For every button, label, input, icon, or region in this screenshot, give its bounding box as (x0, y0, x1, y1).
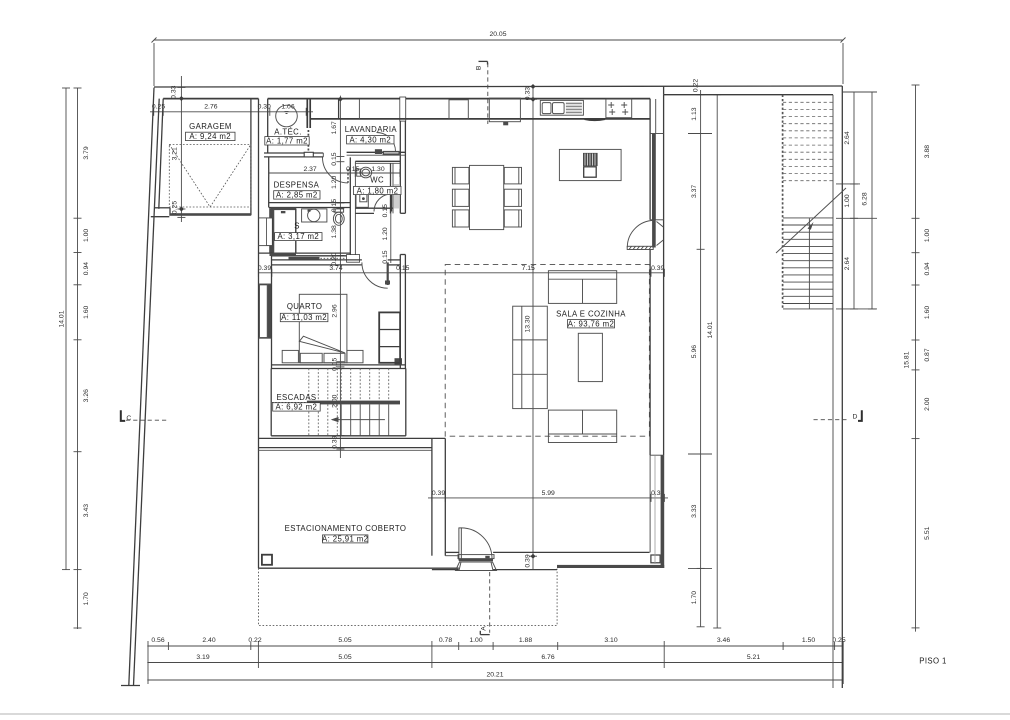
svg-text:0.39: 0.39 (432, 490, 445, 497)
svg-text:SALA E COZINHA: SALA E COZINHA (556, 310, 626, 319)
svg-text:DESPENSA: DESPENSA (274, 181, 320, 190)
svg-text:A: 6,92 m2: A: 6,92 m2 (276, 403, 318, 412)
svg-text:ESCADAS: ESCADAS (276, 393, 316, 402)
svg-text:1.38: 1.38 (331, 225, 338, 238)
svg-text:1.60: 1.60 (924, 306, 931, 319)
svg-text:1.00: 1.00 (924, 229, 931, 242)
svg-text:0.30: 0.30 (258, 104, 271, 111)
svg-text:QUARTO: QUARTO (287, 302, 322, 311)
svg-text:5.05: 5.05 (338, 654, 351, 661)
svg-text:0.39: 0.39 (651, 265, 664, 272)
svg-text:1.70: 1.70 (83, 592, 90, 605)
svg-text:14.01: 14.01 (59, 310, 66, 327)
svg-text:B: B (476, 65, 483, 70)
svg-text:2.96: 2.96 (332, 304, 339, 317)
svg-text:0.15: 0.15 (382, 250, 389, 263)
svg-text:A: 1,80 m2: A: 1,80 m2 (357, 187, 399, 196)
svg-text:WC: WC (370, 176, 384, 185)
svg-text:GARAGEM: GARAGEM (189, 122, 232, 131)
svg-text:0.22: 0.22 (693, 79, 700, 92)
svg-text:S: S (294, 222, 300, 231)
svg-text:0.94: 0.94 (924, 262, 931, 275)
svg-text:0.56: 0.56 (151, 637, 164, 644)
svg-text:15.81: 15.81 (904, 351, 911, 368)
svg-text:0.39: 0.39 (258, 265, 271, 272)
svg-text:20.05: 20.05 (489, 31, 506, 38)
svg-text:A: 9,24 m2: A: 9,24 m2 (189, 132, 231, 141)
svg-text:3.37: 3.37 (691, 185, 698, 198)
svg-text:0.15: 0.15 (396, 265, 409, 272)
svg-text:LAVANDARIA: LAVANDARIA (345, 125, 398, 134)
svg-text:5.51: 5.51 (924, 526, 931, 539)
svg-text:1.67: 1.67 (331, 121, 338, 134)
svg-text:3.79: 3.79 (83, 146, 90, 159)
svg-text:A: 4,30 m2: A: 4,30 m2 (349, 135, 391, 144)
svg-text:20.21: 20.21 (486, 672, 503, 679)
svg-text:1.13: 1.13 (691, 107, 698, 120)
svg-text:A: 3,17 m2: A: 3,17 m2 (277, 232, 319, 241)
svg-text:3.26: 3.26 (83, 389, 90, 402)
svg-text:1.00: 1.00 (83, 229, 90, 242)
svg-text:3.74: 3.74 (329, 265, 342, 272)
svg-text:1.88: 1.88 (519, 637, 532, 644)
svg-text:3.43: 3.43 (83, 504, 90, 517)
svg-text:1.70: 1.70 (691, 591, 698, 604)
svg-text:A: 1,77 m2: A: 1,77 m2 (266, 136, 308, 145)
svg-text:A: 93,76 m2: A: 93,76 m2 (568, 319, 614, 328)
svg-text:A: A (480, 626, 487, 631)
svg-text:A: 11,03 m2: A: 11,03 m2 (281, 313, 327, 322)
svg-text:2.64: 2.64 (844, 131, 851, 144)
svg-text:2.00: 2.00 (924, 397, 931, 410)
svg-text:0.15: 0.15 (331, 199, 338, 212)
svg-text:0.25: 0.25 (832, 637, 845, 644)
svg-text:3.19: 3.19 (196, 654, 209, 661)
svg-text:0.39: 0.39 (332, 435, 339, 448)
svg-text:1.60: 1.60 (83, 305, 90, 318)
svg-text:0.20: 0.20 (331, 252, 338, 265)
svg-text:ESTACIONAMENTO COBERTO: ESTACIONAMENTO COBERTO (285, 524, 407, 533)
svg-text:2.64: 2.64 (844, 257, 851, 270)
svg-text:1.00: 1.00 (844, 194, 851, 207)
svg-text:PISO 1: PISO 1 (919, 657, 947, 666)
svg-text:5.21: 5.21 (747, 654, 760, 661)
svg-text:D: D (853, 414, 858, 421)
svg-text:A: 2,85 m2: A: 2,85 m2 (276, 191, 318, 200)
svg-text:0.22: 0.22 (248, 637, 261, 644)
svg-text:1.50: 1.50 (802, 637, 815, 644)
svg-text:1.20: 1.20 (382, 227, 389, 240)
svg-text:1.30: 1.30 (371, 166, 384, 173)
svg-text:A.TÉC.: A.TÉC. (274, 128, 302, 137)
svg-text:14.01: 14.01 (707, 321, 714, 338)
svg-text:C: C (126, 415, 131, 422)
svg-text:0.15: 0.15 (382, 204, 389, 217)
svg-text:7.15: 7.15 (522, 265, 535, 272)
svg-text:2.37: 2.37 (303, 166, 316, 173)
svg-text:6.76: 6.76 (541, 654, 554, 661)
svg-text:1.00: 1.00 (469, 637, 482, 644)
svg-text:0.94: 0.94 (83, 262, 90, 275)
svg-text:0.15: 0.15 (346, 166, 359, 173)
svg-text:5.99: 5.99 (542, 490, 555, 497)
svg-text:2.76: 2.76 (204, 104, 217, 111)
svg-text:3.88: 3.88 (924, 145, 931, 158)
svg-text:5.05: 5.05 (338, 637, 351, 644)
svg-text:3.10: 3.10 (604, 637, 617, 644)
svg-text:0.78: 0.78 (439, 637, 452, 644)
svg-text:0.87: 0.87 (924, 348, 931, 361)
svg-text:6.28: 6.28 (862, 192, 869, 205)
svg-text:0.39: 0.39 (525, 554, 532, 567)
svg-text:3.33: 3.33 (691, 504, 698, 517)
svg-text:0.15: 0.15 (331, 152, 338, 165)
svg-text:3.46: 3.46 (717, 637, 730, 644)
svg-text:A: 25,91 m2: A: 25,91 m2 (322, 535, 368, 544)
svg-text:5.96: 5.96 (691, 345, 698, 358)
svg-text:2.40: 2.40 (202, 637, 215, 644)
svg-text:13.30: 13.30 (525, 315, 532, 332)
